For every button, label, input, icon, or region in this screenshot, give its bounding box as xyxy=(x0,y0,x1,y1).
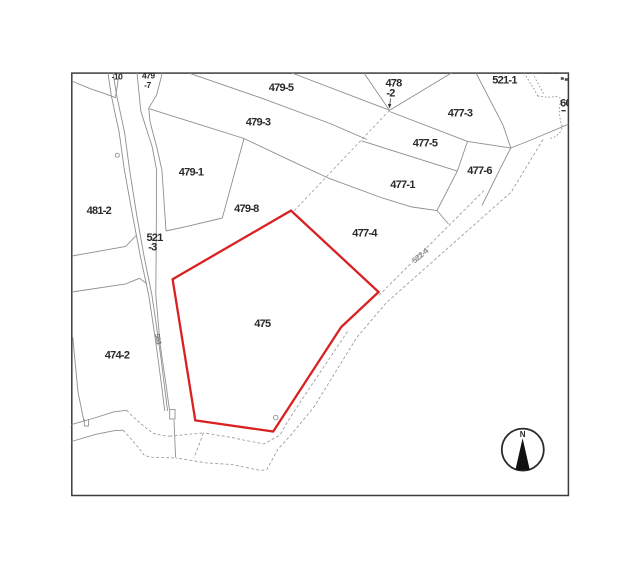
svg-text:477-5: 477-5 xyxy=(413,137,438,149)
svg-text:60: 60 xyxy=(560,98,571,110)
svg-text:-10: -10 xyxy=(112,71,124,81)
svg-text:-3: -3 xyxy=(148,241,157,253)
svg-text:503: 503 xyxy=(153,333,162,345)
svg-text:N: N xyxy=(520,430,526,439)
svg-text:481-2: 481-2 xyxy=(87,205,112,217)
svg-text:479-1: 479-1 xyxy=(179,166,204,178)
svg-text:475: 475 xyxy=(254,318,271,330)
svg-text:-2: -2 xyxy=(386,88,395,100)
svg-text:477-6: 477-6 xyxy=(467,165,492,177)
svg-text:479-8: 479-8 xyxy=(234,203,259,215)
svg-text:-7: -7 xyxy=(144,80,151,90)
svg-text:479-3: 479-3 xyxy=(246,116,271,128)
svg-text:479-5: 479-5 xyxy=(269,82,294,94)
svg-text:477-1: 477-1 xyxy=(390,179,415,191)
svg-text:521-1: 521-1 xyxy=(492,75,517,87)
svg-text:474-2: 474-2 xyxy=(105,350,130,362)
svg-text:477-4: 477-4 xyxy=(352,228,378,240)
svg-text:477-3: 477-3 xyxy=(448,107,473,119)
svg-text:522-4: 522-4 xyxy=(410,246,431,265)
